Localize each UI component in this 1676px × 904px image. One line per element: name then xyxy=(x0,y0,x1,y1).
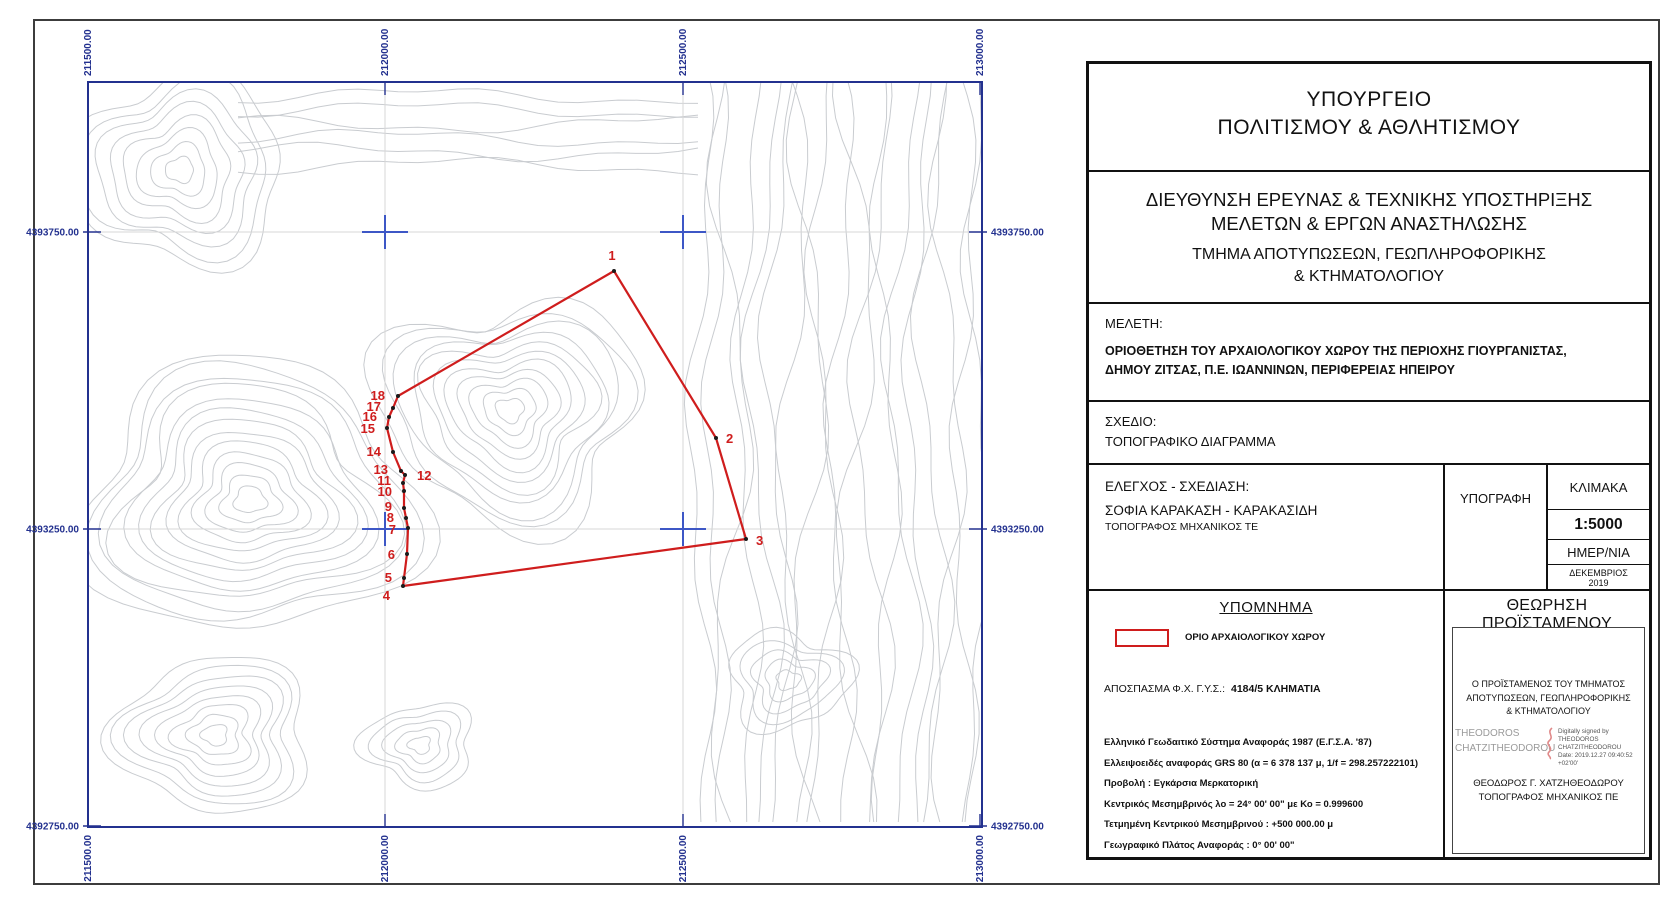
vertex-dot xyxy=(396,394,400,398)
date-label: ΗΜΕΡ/ΝΙΑ xyxy=(1548,540,1649,565)
scale-date-cell: ΚΛΙΜΑΚΑ 1:5000 ΗΜΕΡ/ΝΙΑ ΔΕΚΕΜΒΡΙΟΣ 2019 xyxy=(1548,465,1649,589)
study-title-line1: ΟΡΙΟΘΕΤΗΣΗ ΤΟΥ ΑΡΧΑΙΟΛΟΓΙΚΟΥ ΧΩΡΟΥ ΤΗΣ Π… xyxy=(1105,342,1633,361)
study-section: ΜΕΛΕΤΗ: ΟΡΙΟΘΕΤΗΣΗ ΤΟΥ ΑΡΧΑΙΟΛΟΓΙΚΟΥ ΧΩΡ… xyxy=(1089,302,1649,400)
vertex-label: 3 xyxy=(756,533,763,548)
vertex-dot xyxy=(744,537,748,541)
geodetic-note: Γεωγραφικό Πλάτος Αναφοράς : 0° 00' 00" xyxy=(1104,840,1418,861)
ministry-line2: ΠΟΛΙΤΙΣΜΟΥ & ΑΘΛΗΤΙΣΜΟΥ xyxy=(1089,114,1649,142)
vertex-label: 2 xyxy=(726,431,733,446)
northing-label: 4393750.00 xyxy=(26,228,79,239)
vertex-dot xyxy=(403,473,407,477)
digital-signer-name: THEODOROS CHATZITHEODOROU xyxy=(1455,726,1543,756)
signature-cell: ΥΠΟΓΡΑΦΗ xyxy=(1445,465,1548,589)
vertex-dot xyxy=(714,436,718,440)
vertex-label: 1 xyxy=(608,248,615,263)
easting-label: 213000.00 xyxy=(975,28,986,76)
ministry-line1: ΥΠΟΥΡΓΕΙΟ xyxy=(1089,86,1649,114)
drawing-section: ΣΧΕΔΙΟ: ΤΟΠΟΓΡΑΦΙΚΟ ΔΙΑΓΡΑΜΜΑ xyxy=(1089,400,1649,463)
study-label: ΜΕΛΕΤΗ: xyxy=(1105,316,1633,331)
vertex-label: 14 xyxy=(367,444,382,459)
legend-item: ΟΡΙΟ ΑΡΧΑΙΟΛΟΓΙΚΟΥ ΧΩΡΟΥ xyxy=(1185,632,1325,643)
check-title: ΤΟΠΟΓΡΑΦΟΣ ΜΗΧΑΝΙΚΟΣ ΤΕ xyxy=(1105,521,1427,533)
vertex-label: 18 xyxy=(371,388,385,403)
vertex-dot xyxy=(385,426,389,430)
easting-label: 213000.00 xyxy=(975,835,986,883)
topographic-map: 123456789101112131415161718211500.002115… xyxy=(18,12,1058,892)
easting-label: 211500.00 xyxy=(83,835,94,882)
vertex-label: 6 xyxy=(388,547,395,562)
legend-title: ΥΠΟΜΝΗΜΑ xyxy=(1089,599,1443,616)
approval-head-line2: ΑΠΟΤΥΠΩΣΕΩΝ, ΓΕΩΠΛΗΡΟΦΟΡΙΚΗΣ xyxy=(1453,692,1644,706)
department-line2: & ΚΤΗΜΑΤΟΛΟΓΙΟΥ xyxy=(1089,266,1649,288)
check-cell: ΕΛΕΓΧΟΣ - ΣΧΕΔΙΑΣΗ: ΣΟΦΙΑ ΚΑΡΑΚΑΣΗ - ΚΑΡ… xyxy=(1089,465,1445,589)
northing-label: 4392750.00 xyxy=(991,822,1044,833)
vertex-dot xyxy=(401,584,405,588)
bottom-row: ΥΠΟΜΝΗΜΑ ΟΡΙΟ ΑΡΧΑΙΟΛΟΓΙΚΟΥ ΧΩΡΟΥ ΑΠΟΣΠΑ… xyxy=(1089,589,1649,857)
vertex-label: 4 xyxy=(383,588,391,603)
scale-label: ΚΛΙΜΑΚΑ xyxy=(1548,465,1649,510)
check-label: ΕΛΕΓΧΟΣ - ΣΧΕΔΙΑΣΗ: xyxy=(1105,479,1427,494)
northing-label: 4393250.00 xyxy=(991,525,1044,536)
easting-label: 212000.00 xyxy=(380,28,391,76)
vertex-dot xyxy=(402,576,406,580)
department-line1: ΤΜΗΜΑ ΑΠΟΤΥΠΩΣΕΩΝ, ΓΕΩΠΛΗΡΟΦΟΡΙΚΗΣ xyxy=(1089,244,1649,266)
approval-signature-box: Ο ΠΡΟΪΣΤΑΜΕΝΟΣ ΤΟΥ ΤΜΗΜΑΤΟΣ ΑΠΟΤΥΠΩΣΕΩΝ,… xyxy=(1452,627,1645,854)
check-row: ΕΛΕΓΧΟΣ - ΣΧΕΔΙΑΣΗ: ΣΟΦΙΑ ΚΑΡΑΚΑΣΗ - ΚΑΡ… xyxy=(1089,463,1649,589)
directorate-line1: ΔΙΕΥΘΥΝΣΗ ΕΡΕΥΝΑΣ & ΤΕΧΝΙΚΗΣ ΥΠΟΣΤΗΡΙΞΗΣ xyxy=(1089,188,1649,212)
drawing-value: ΤΟΠΟΓΡΑΦΙΚΟ ΔΙΑΓΡΑΜΜΑ xyxy=(1105,432,1633,452)
signer-title: ΤΟΠΟΓΡΑΦΟΣ ΜΗΧΑΝΙΚΟΣ ΠΕ xyxy=(1453,791,1644,805)
vertex-dot xyxy=(399,469,403,473)
directorate-header: ΔΙΕΥΘΥΝΣΗ ΕΡΕΥΝΑΣ & ΤΕΧΝΙΚΗΣ ΥΠΟΣΤΗΡΙΞΗΣ… xyxy=(1089,170,1649,302)
vertex-dot xyxy=(405,552,409,556)
title-block: ΥΠΟΥΡΓΕΙΟ ΠΟΛΙΤΙΣΜΟΥ & ΑΘΛΗΤΙΣΜΟΥ ΔΙΕΥΘΥ… xyxy=(1086,61,1652,860)
boundary-swatch xyxy=(1115,629,1169,647)
approval-head-line3: & ΚΤΗΜΑΤΟΛΟΓΙΟΥ xyxy=(1453,705,1644,719)
digital-signature-stamp: THEODOROS CHATZITHEODOROU Digitally sign… xyxy=(1453,726,1644,768)
vertex-label: 9 xyxy=(385,499,392,514)
signature-label: ΥΠΟΓΡΑΦΗ xyxy=(1460,491,1531,506)
easting-label: 212000.00 xyxy=(380,835,391,883)
map-sheet-excerpt: ΑΠΟΣΠΑΣΜΑ Φ.Χ. Γ.Υ.Σ.:4184/5 ΚΛΗΜΑΤΙΑ xyxy=(1104,683,1321,695)
geodetic-note: Ελλειψοειδές αναφοράς GRS 80 (α = 6 378 … xyxy=(1104,758,1418,779)
geodetic-note: Προβολή : Εγκάρσια Μερκατορική xyxy=(1104,778,1418,799)
vertex-dot xyxy=(404,516,408,520)
vertex-dot xyxy=(391,450,395,454)
drawing-label: ΣΧΕΔΙΟ: xyxy=(1105,412,1633,432)
vertex-dot xyxy=(402,489,406,493)
vertex-dot xyxy=(401,481,405,485)
vertex-label: 13 xyxy=(374,462,388,477)
excerpt-label: ΑΠΟΣΠΑΣΜΑ Φ.Χ. Γ.Υ.Σ.: xyxy=(1104,683,1225,695)
northing-label: 4392750.00 xyxy=(26,822,79,833)
signer-name: ΘΕΟΔΩΡΟΣ Γ. ΧΑΤΖΗΘΕΟΔΩΡΟΥ xyxy=(1453,777,1644,791)
geodetic-note: Τετμημένη Κεντρικού Μεσημβρινού : +500 0… xyxy=(1104,819,1418,840)
directorate-line2: ΜΕΛΕΤΩΝ & ΕΡΓΩΝ ΑΝΑΣΤΗΛΩΣΗΣ xyxy=(1089,212,1649,236)
scale-value: 1:5000 xyxy=(1548,510,1649,540)
study-title-line2: ΔΗΜΟΥ ΖΙΤΣΑΣ, Π.Ε. ΙΩΑΝΝΙΝΩΝ, ΠΕΡΙΦΕΡΕΙΑ… xyxy=(1105,361,1633,380)
easting-label: 212500.00 xyxy=(678,835,689,883)
vertex-dot xyxy=(406,526,410,530)
digital-signature-details: Digitally signed by THEODOROS CHATZITHEO… xyxy=(1558,726,1642,768)
check-name: ΣΟΦΙΑ ΚΑΡΑΚΑΣΗ - ΚΑΡΑΚΑΣΙΔΗ xyxy=(1105,503,1427,518)
vertex-dot xyxy=(612,269,616,273)
excerpt-value: 4184/5 ΚΛΗΜΑΤΙΑ xyxy=(1231,683,1321,695)
geodetic-note: Ελληνικό Γεωδαιτικό Σύστημα Αναφοράς 198… xyxy=(1104,737,1418,758)
easting-label: 211500.00 xyxy=(83,29,94,76)
vertex-label: 12 xyxy=(417,468,431,483)
date-value-month: ΔΕΚΕΜΒΡΙΟΣ xyxy=(1569,568,1628,578)
approval-cell: ΘΕΩΡΗΣΗ ΠΡΟΪΣΤΑΜΕΝΟΥ Ο ΠΡΟΪΣΤΑΜΕΝΟΣ ΤΟΥ … xyxy=(1445,591,1649,857)
vertex-dot xyxy=(391,406,395,410)
vertex-dot xyxy=(387,415,391,419)
northing-label: 4393750.00 xyxy=(991,228,1044,239)
legend-cell: ΥΠΟΜΝΗΜΑ ΟΡΙΟ ΑΡΧΑΙΟΛΟΓΙΚΟΥ ΧΩΡΟΥ ΑΠΟΣΠΑ… xyxy=(1089,591,1445,857)
geodetic-note: Κεντρικός Μεσημβρινός λο = 24° 00' 00" μ… xyxy=(1104,799,1418,820)
ministry-header: ΥΠΟΥΡΓΕΙΟ ΠΟΛΙΤΙΣΜΟΥ & ΑΘΛΗΤΙΣΜΟΥ xyxy=(1089,64,1649,170)
vertex-dot xyxy=(402,506,406,510)
northing-label: 4393250.00 xyxy=(26,525,79,536)
date-value: ΔΕΚΕΜΒΡΙΟΣ 2019 xyxy=(1548,565,1649,590)
easting-label: 212500.00 xyxy=(678,28,689,76)
geodetic-notes: Ελληνικό Γεωδαιτικό Σύστημα Αναφοράς 198… xyxy=(1104,737,1418,860)
approval-head-line1: Ο ΠΡΟΪΣΤΑΜΕΝΟΣ ΤΟΥ ΤΜΗΜΑΤΟΣ xyxy=(1453,678,1644,692)
date-value-year: 2019 xyxy=(1588,578,1608,588)
signature-ribbon-icon xyxy=(1544,726,1557,760)
vertex-label: 5 xyxy=(385,570,392,585)
drawing-sheet: 123456789101112131415161718211500.002115… xyxy=(0,0,1676,904)
